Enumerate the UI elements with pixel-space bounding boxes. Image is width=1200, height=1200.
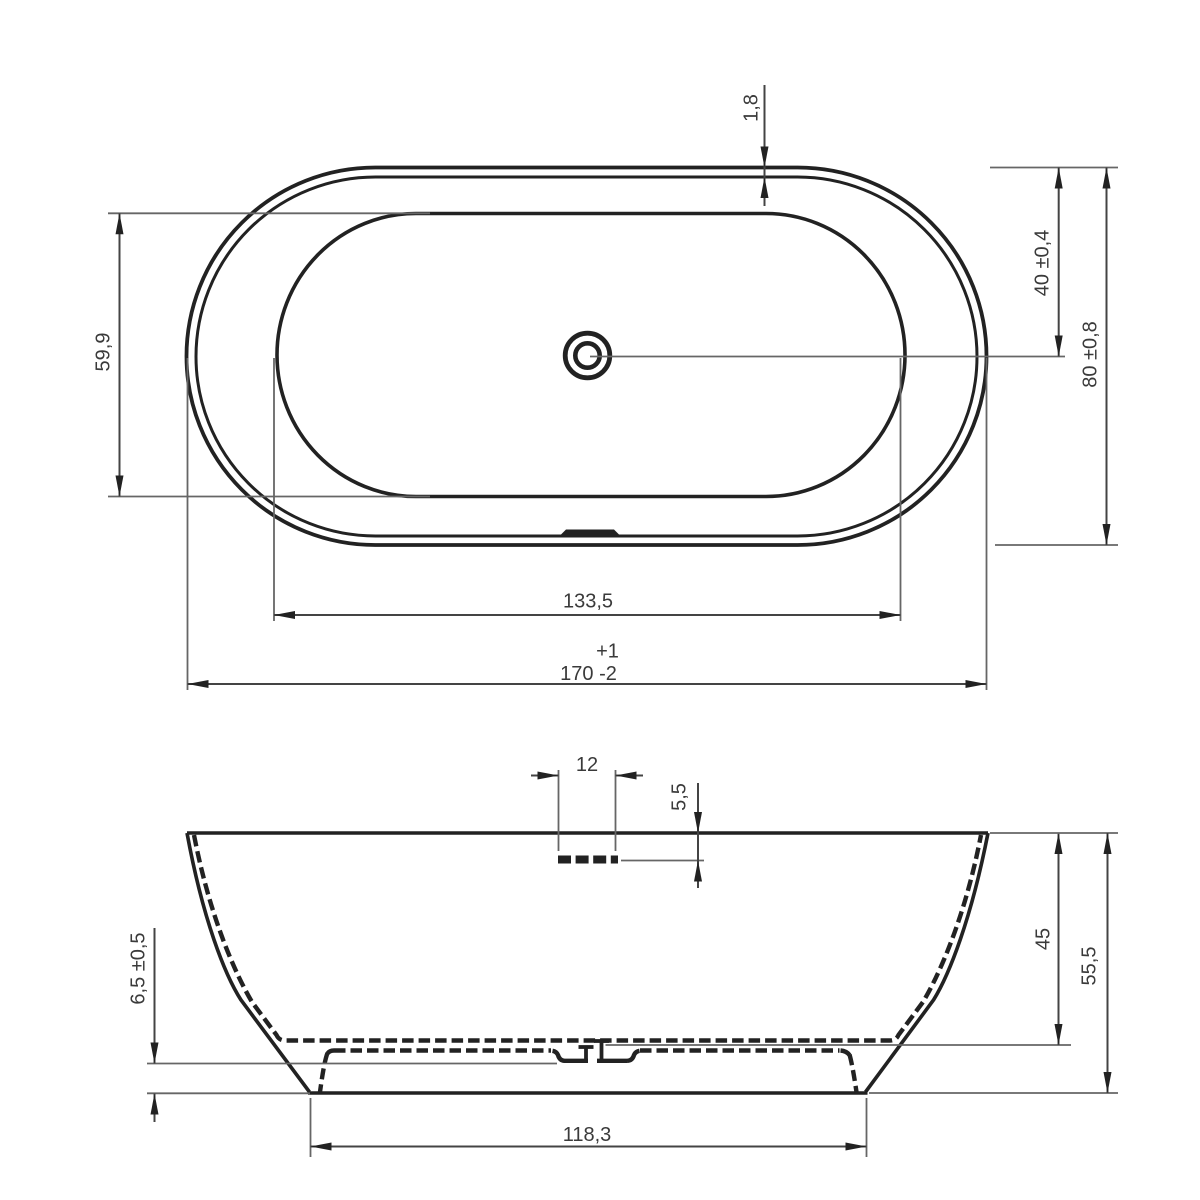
- svg-text:5,5: 5,5: [668, 783, 690, 811]
- svg-text:80 ±0,8: 80 ±0,8: [1079, 321, 1101, 388]
- svg-text:55,5: 55,5: [1078, 947, 1100, 986]
- svg-text:45: 45: [1032, 928, 1054, 950]
- svg-text:118,3: 118,3: [563, 1124, 612, 1146]
- svg-text:59,9: 59,9: [92, 333, 114, 372]
- svg-text:12: 12: [576, 754, 598, 776]
- svg-text:+1: +1: [596, 641, 619, 663]
- svg-text:170 -2: 170 -2: [560, 663, 617, 685]
- svg-text:133,5: 133,5: [563, 591, 613, 613]
- svg-text:1,8: 1,8: [740, 94, 762, 122]
- svg-text:6,5 ±0,5: 6,5 ±0,5: [127, 932, 149, 1004]
- svg-text:40 ±0,4: 40 ±0,4: [1031, 230, 1053, 297]
